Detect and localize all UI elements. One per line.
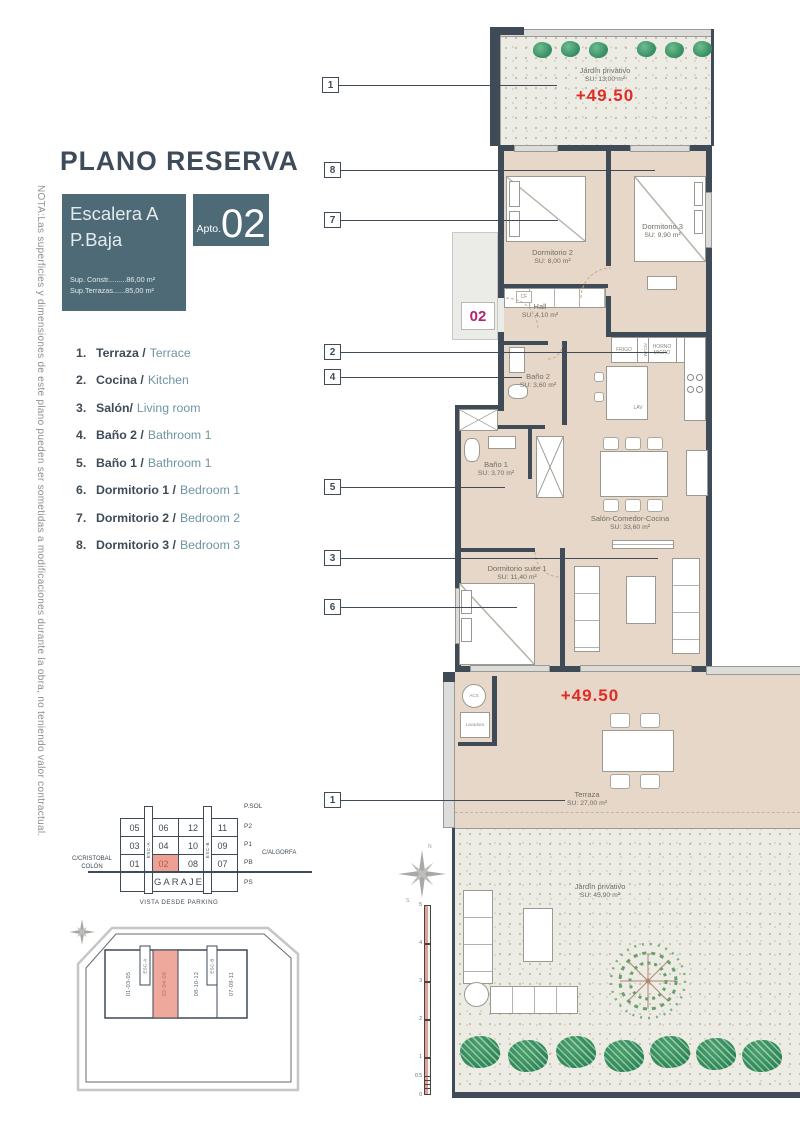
legend-item-4: 4. Baño 2 / Bathroom 1 [76, 428, 316, 448]
apto-label: Apto. [196, 223, 221, 235]
room-label-jardin-top: Jardín privativo SU: 13,00 m² [545, 66, 665, 85]
legend-item-6: 6. Dormitorio 1 / Bedroom 1 [76, 483, 316, 503]
callout-1-terraza: 1 [324, 792, 341, 808]
apto-box: Apto. 02 [193, 194, 269, 246]
bush-icon [556, 1036, 596, 1068]
leader-line [341, 170, 655, 171]
scale-tick [424, 1084, 431, 1085]
terrace-boundary-dashed [455, 812, 800, 813]
garden-top-fence [500, 29, 713, 37]
legend-en: Terrace [150, 346, 191, 366]
bush-icon [604, 1040, 644, 1072]
scale-tick [424, 1019, 431, 1021]
info-box: Escalera A P.Baja Sup. Constr.........86… [62, 194, 186, 311]
chair [610, 774, 630, 789]
legend-num: 5. [76, 456, 96, 476]
legend-es: Baño 1 / [96, 456, 144, 476]
escalera-label: Escalera A [70, 203, 178, 225]
legend-es: Salón/ [96, 401, 133, 421]
floor-label-p1: P1 [244, 841, 252, 848]
callout-2: 2 [324, 344, 341, 360]
bush-icon [533, 42, 552, 58]
room-label-jardin-bottom: Jardín privativo SU: 45,90 m² [538, 882, 662, 901]
wall [452, 828, 455, 1098]
scale-label: 0 [412, 1092, 422, 1098]
legend-en: Bathroom 1 [148, 428, 212, 448]
callout-8: 8 [324, 162, 341, 178]
siteplan-compass-icon [70, 919, 95, 945]
garage-garaje-cell: GARAJE [120, 872, 238, 892]
legend-num: 4. [76, 428, 96, 448]
bush-icon [637, 41, 656, 57]
side-table [464, 982, 489, 1007]
legend-num: 8. [76, 538, 96, 558]
legend-num: 1. [76, 346, 96, 366]
legend-num: 6. [76, 483, 96, 503]
wall [492, 676, 497, 744]
chair [640, 713, 660, 728]
floor-label-ps: PS [244, 879, 253, 886]
room-area: SU: 45,90 m² [538, 892, 662, 901]
scale-tick [424, 1057, 431, 1059]
nota-vertical-text: NOTA:Las superficies y dimensiones de es… [30, 185, 46, 985]
garage-caption: VISTA DESDE PARKING [118, 899, 240, 906]
chair [610, 713, 630, 728]
scale-tick [424, 1088, 431, 1089]
elevation-terrace: +49.50 [528, 686, 652, 706]
leader-line [341, 800, 565, 801]
lavadora-label: Lavadora [466, 722, 484, 727]
legend-es: Cocina / [96, 373, 144, 393]
compass-n-label: N [428, 844, 432, 850]
street-line [88, 871, 312, 873]
tree-icon [600, 933, 696, 1029]
apto-number: 02 [221, 207, 266, 241]
sup-constr: Sup. Constr.........86,00 m² [70, 275, 178, 284]
planta-label: P.Baja [70, 229, 178, 251]
washer: Lavadora [460, 712, 490, 738]
scale-label: 5 [412, 902, 422, 908]
door-arcs [440, 140, 720, 700]
elevation-top: +49.50 [545, 86, 665, 106]
legend-item-1: 1. Terraza / Terrace [76, 346, 316, 366]
bush-icon [696, 1038, 736, 1070]
stair-b-label: ESC-B [205, 842, 210, 858]
callout-1: 1 [322, 77, 339, 93]
scale-bar [424, 905, 431, 1095]
floor-label-psol: P.SOL [244, 803, 262, 810]
street-left-1: C/CRISTOBAL [66, 855, 118, 863]
leader-line [341, 607, 517, 608]
leader-line [341, 487, 505, 488]
bush-icon [561, 41, 580, 57]
wall [458, 742, 497, 746]
legend-en: Kitchen [148, 373, 189, 393]
acs-unit: ACS [462, 684, 486, 708]
legend-es: Dormitorio 3 / [96, 538, 176, 558]
room-area: SU: 13,00 m² [545, 76, 665, 85]
outdoor-sofa [463, 890, 493, 984]
room-name: Jardín privativo [538, 882, 662, 892]
leader-line [341, 558, 658, 559]
callout-7: 7 [324, 212, 341, 228]
scale-label: 4 [412, 940, 422, 946]
street-right-label: C/ALGORFA [262, 850, 296, 856]
legend-en: Bedroom 1 [180, 483, 240, 503]
wall [443, 672, 455, 682]
legend-es: Terraza / [96, 346, 146, 366]
legend-item-5: 5. Baño 1 / Bathroom 1 [76, 456, 316, 476]
scale-label: 1 [412, 1054, 422, 1060]
siteplan: 01-03-05 02-04-06 08-10-12 07-09-11 ESC-… [70, 918, 310, 1110]
floor-label-p2: P2 [244, 823, 252, 830]
bush-icon [665, 42, 684, 58]
scale-label: 3 [412, 978, 422, 984]
scale-tick [424, 1076, 431, 1077]
bush-icon [508, 1040, 548, 1072]
legend-en: Bathroom 1 [148, 456, 212, 476]
wall [490, 27, 524, 35]
scale-label: 0.5 [410, 1073, 422, 1079]
legend-item-7: 7. Dormitorio 2 / Bedroom 2 [76, 511, 316, 531]
wall [452, 1092, 800, 1098]
compass-s-label: S [406, 898, 409, 904]
bush-icon [693, 41, 712, 57]
legend-es: Dormitorio 1 / [96, 483, 176, 503]
legend-en: Bedroom 2 [180, 511, 240, 531]
room-name: Terraza [532, 790, 642, 800]
garage-stair-b: ESC-B [203, 806, 212, 894]
callout-4: 4 [324, 369, 341, 385]
floor-label-pb: PB [244, 859, 253, 866]
leader-line [341, 377, 522, 378]
scale-tick [424, 943, 431, 945]
wall [490, 27, 500, 146]
street-left-label: C/CRISTOBAL COLÓN [66, 855, 118, 872]
legend-item-2: 2. Cocina / Kitchen [76, 373, 316, 393]
siteplan-outline [70, 918, 310, 1110]
scale-tick [424, 1080, 431, 1081]
chair [640, 774, 660, 789]
stair-a-label: ESC-A [146, 842, 151, 858]
legend-num: 3. [76, 401, 96, 421]
terrace-table [602, 730, 674, 772]
room-name: Jardín privativo [545, 66, 665, 76]
scale-tick [424, 981, 431, 983]
sup-terrazas: Sup.Terrazas......85,00 m² [70, 286, 178, 295]
legend-en: Bedroom 3 [180, 538, 240, 558]
callout-3: 3 [324, 550, 341, 566]
legend-item-3: 3. Salón/ Living room [76, 401, 316, 421]
scale-label: 2 [412, 1016, 422, 1022]
acs-label: ACS [469, 693, 478, 698]
terrace-left-wall [443, 672, 455, 828]
leader-line [339, 85, 557, 86]
page-title: PLANO RESERVA [60, 146, 299, 177]
bush-icon [650, 1036, 690, 1068]
legend-es: Dormitorio 2 / [96, 511, 176, 531]
callout-6: 6 [324, 599, 341, 615]
outdoor-sofa [490, 986, 578, 1014]
plano-reserva-sheet: NOTA:Las superficies y dimensiones de es… [0, 0, 800, 1133]
terrace-rail [706, 666, 800, 675]
leader-line [341, 220, 558, 221]
bush-icon [589, 42, 608, 58]
outdoor-table [523, 908, 553, 962]
leader-line [341, 352, 667, 353]
compass-icon [398, 850, 446, 898]
legend-num: 7. [76, 511, 96, 531]
legend-num: 2. [76, 373, 96, 393]
legend-item-8: 8. Dormitorio 3 / Bedroom 3 [76, 538, 316, 558]
garage-stair-a: ESC-A [144, 806, 153, 894]
callout-5: 5 [324, 479, 341, 495]
legend-es: Baño 2 / [96, 428, 144, 448]
bush-icon [460, 1036, 500, 1068]
legend-en: Living room [137, 401, 201, 421]
bush-icon [742, 1040, 782, 1072]
